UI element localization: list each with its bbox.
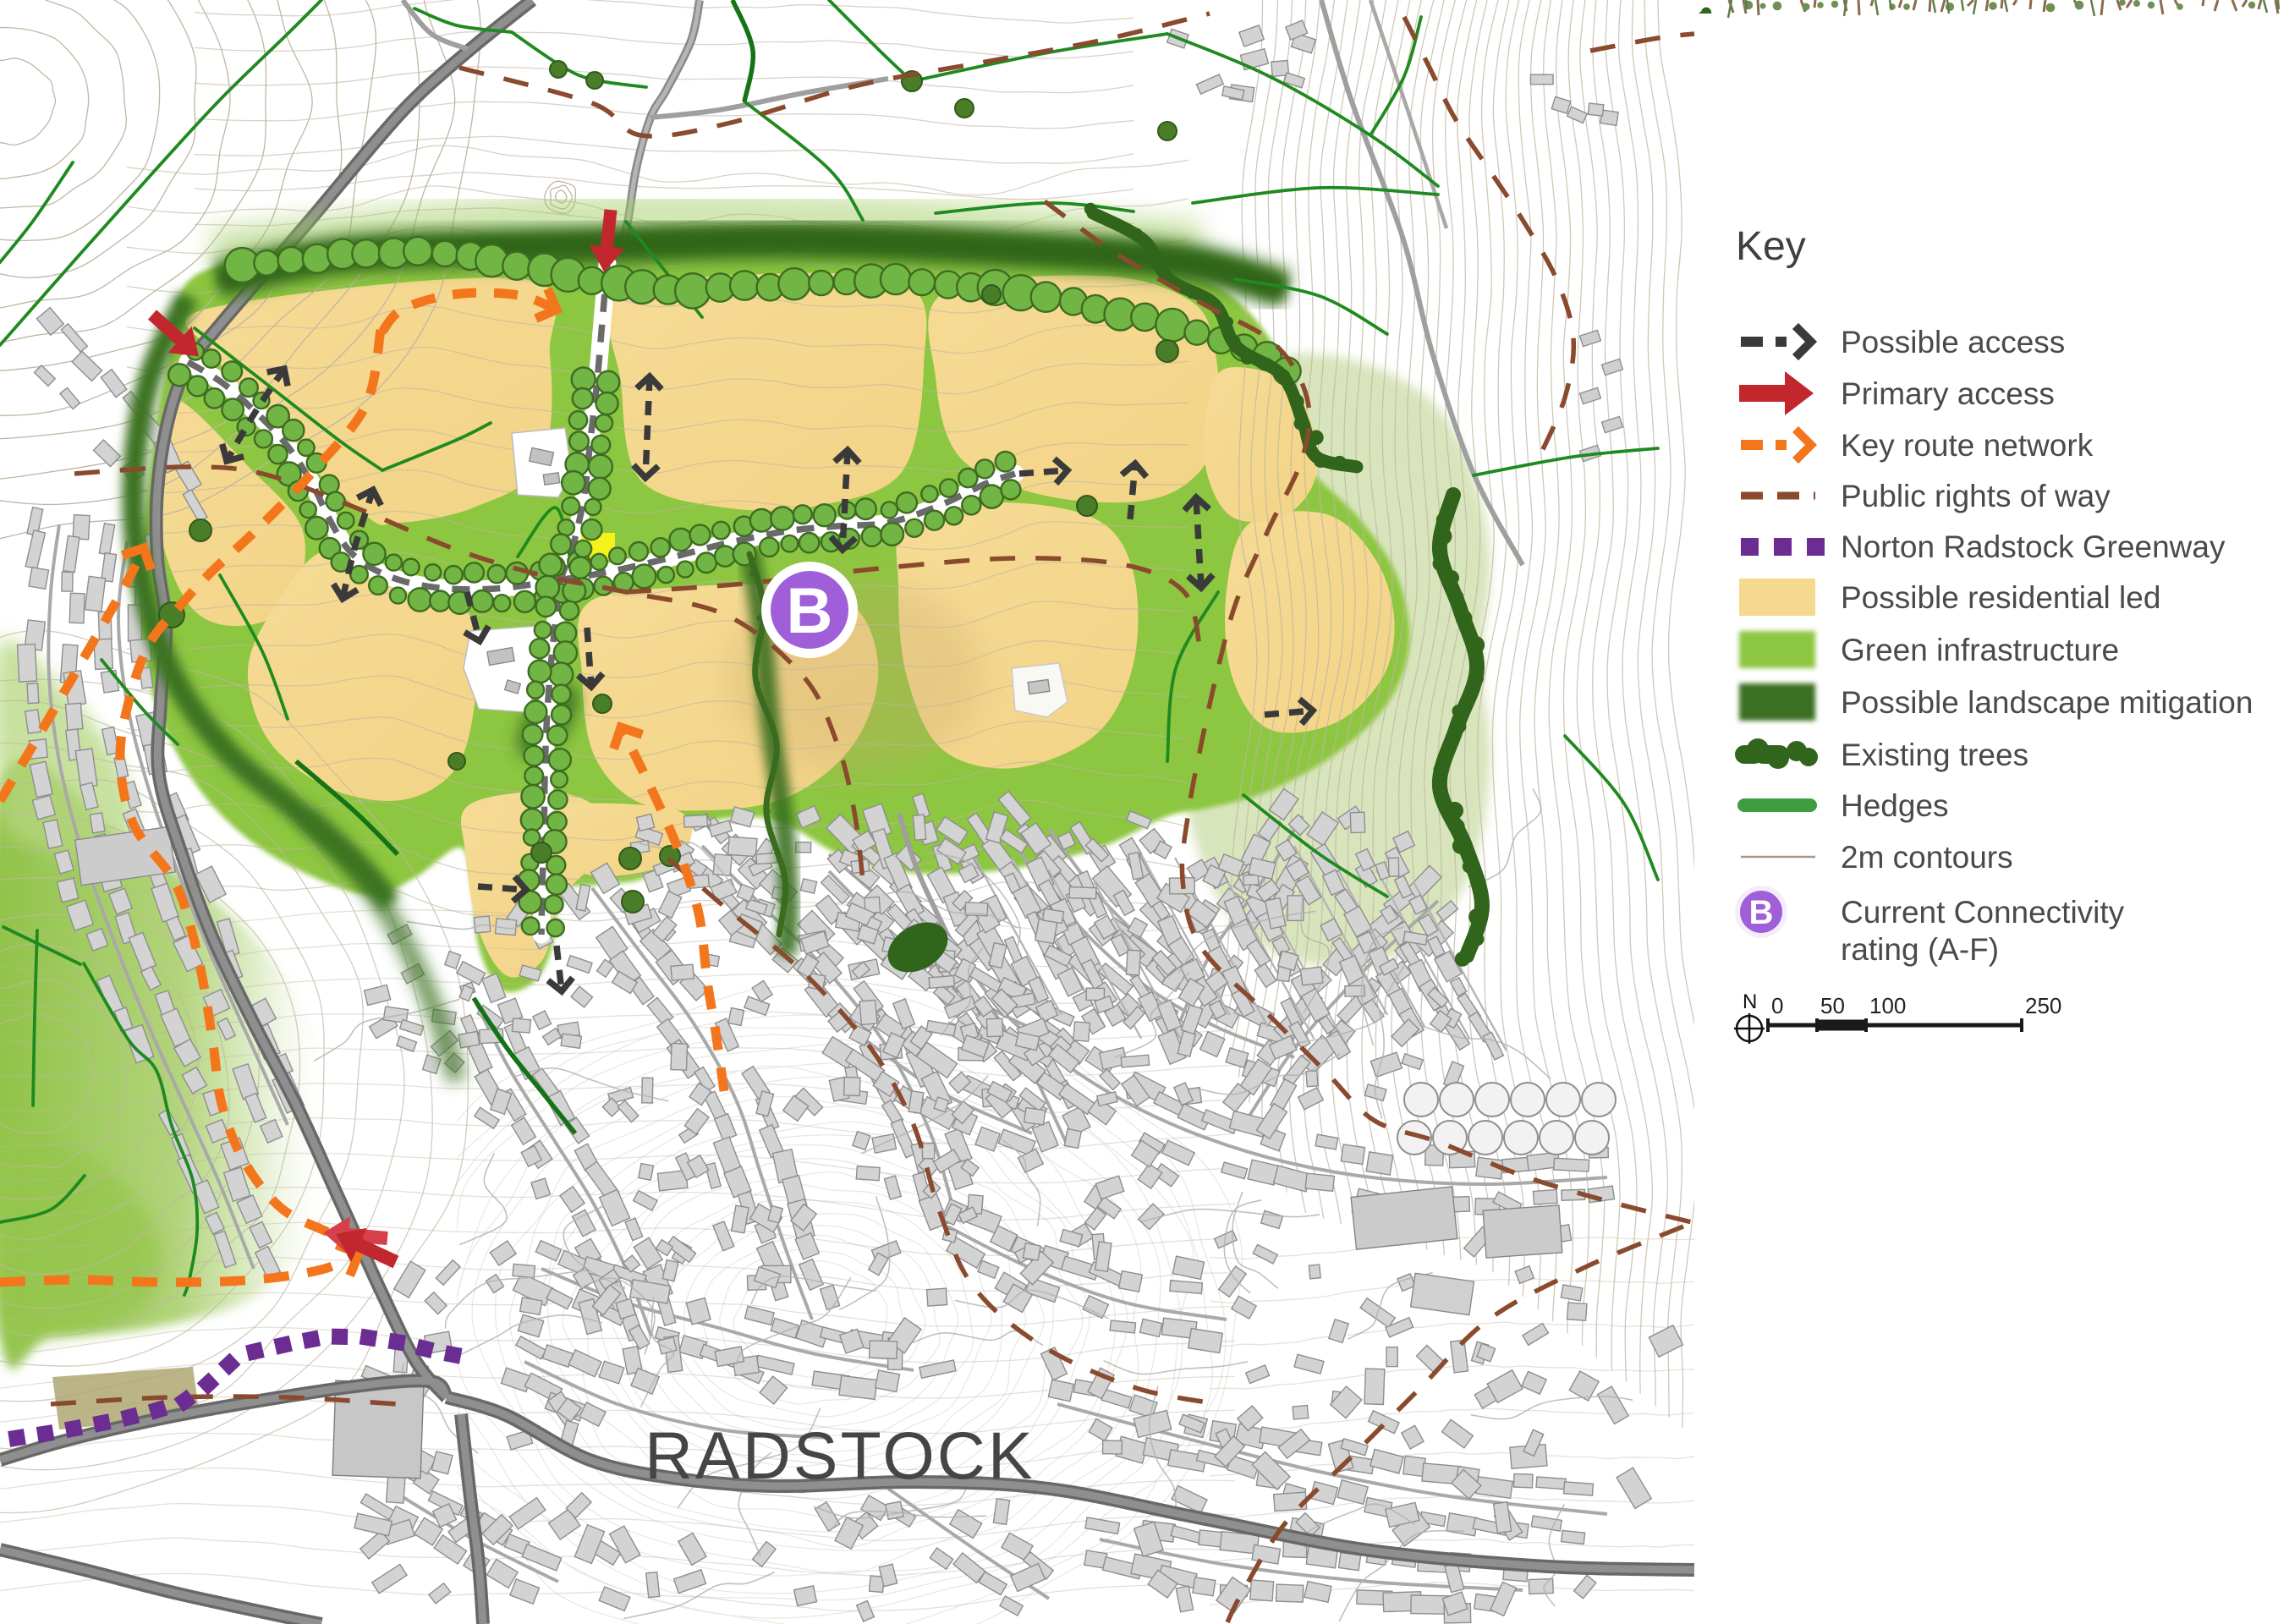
svg-text:Hedges: Hedges: [1841, 788, 1949, 823]
svg-text:Possible access: Possible access: [1841, 325, 2065, 359]
svg-text:N: N: [1743, 990, 1757, 1013]
svg-text:50: 50: [1820, 993, 1845, 1018]
svg-text:Norton Radstock Greenway: Norton Radstock Greenway: [1841, 529, 2226, 564]
svg-text:B: B: [787, 575, 833, 647]
svg-text:Public rights of way: Public rights of way: [1841, 479, 2111, 513]
svg-text:100: 100: [1869, 993, 1906, 1018]
svg-text:Current Connectivity: Current Connectivity: [1841, 895, 2125, 930]
svg-text:Key route network: Key route network: [1841, 428, 2094, 463]
svg-text:Possible residential led: Possible residential led: [1841, 580, 2160, 615]
svg-text:Key: Key: [1736, 224, 1806, 269]
svg-text:Green infrastructure: Green infrastructure: [1841, 633, 2119, 667]
svg-text:RADSTOCK: RADSTOCK: [645, 1418, 1035, 1493]
svg-text:2m contours: 2m contours: [1841, 840, 2013, 875]
svg-text:250: 250: [2025, 993, 2061, 1018]
svg-text:0: 0: [1771, 993, 1783, 1018]
svg-text:Existing trees: Existing trees: [1841, 738, 2028, 772]
svg-text:Possible landscape mitigation: Possible landscape mitigation: [1841, 685, 2253, 720]
svg-text:B: B: [1749, 894, 1774, 931]
svg-text:rating (A-F): rating (A-F): [1841, 932, 1999, 967]
svg-text:Primary access: Primary access: [1841, 376, 2055, 411]
